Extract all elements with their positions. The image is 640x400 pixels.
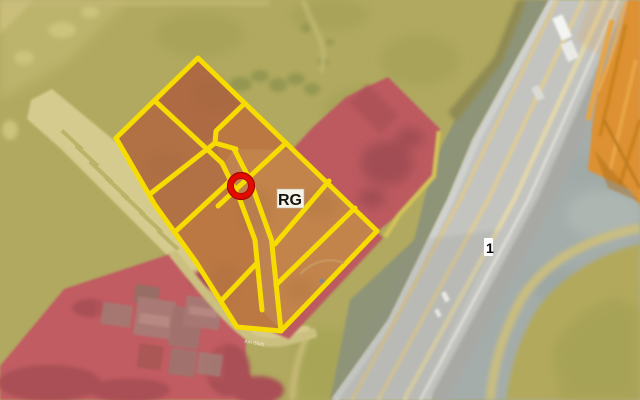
svg-text:RG: RG — [278, 192, 302, 209]
svg-text:1: 1 — [486, 240, 494, 256]
